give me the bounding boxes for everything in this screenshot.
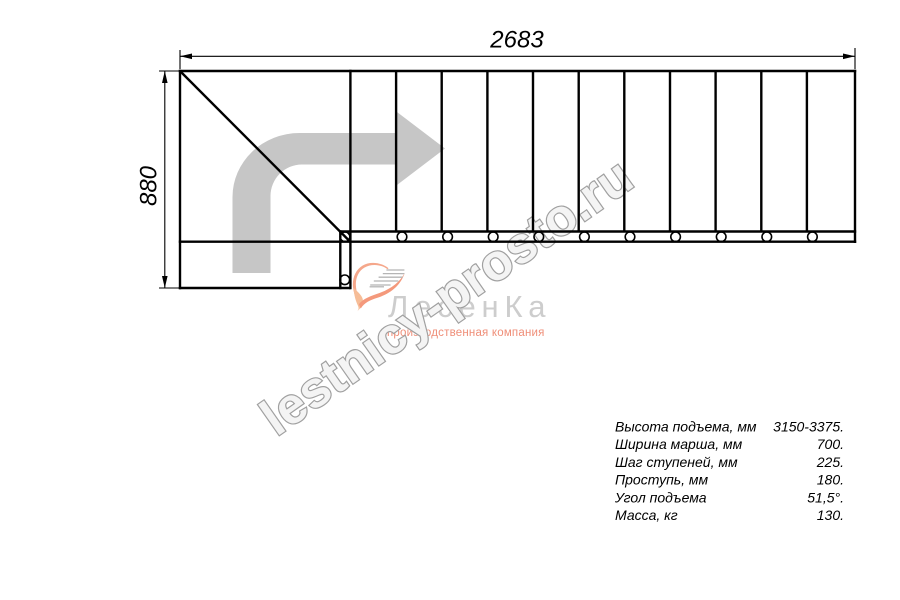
svg-text:130.: 130. xyxy=(817,507,844,523)
svg-text:700.: 700. xyxy=(817,436,844,452)
svg-text:51,5°.: 51,5°. xyxy=(807,489,844,505)
svg-text:Ширина марша, мм: Ширина марша, мм xyxy=(615,436,743,452)
svg-text:Высота подъема, мм: Высота подъема, мм xyxy=(615,419,757,435)
svg-text:880: 880 xyxy=(136,165,163,206)
svg-text:225.: 225. xyxy=(816,454,844,470)
svg-text:2683: 2683 xyxy=(489,27,544,54)
svg-text:Шаг ступеней, мм: Шаг ступеней, мм xyxy=(615,454,738,470)
svg-text:Масса, кг: Масса, кг xyxy=(615,507,678,523)
svg-text:3150-3375.: 3150-3375. xyxy=(773,419,844,435)
svg-text:Угол подъема: Угол подъема xyxy=(614,489,707,505)
svg-text:Проступь, мм: Проступь, мм xyxy=(615,472,709,488)
svg-text:180.: 180. xyxy=(817,472,844,488)
